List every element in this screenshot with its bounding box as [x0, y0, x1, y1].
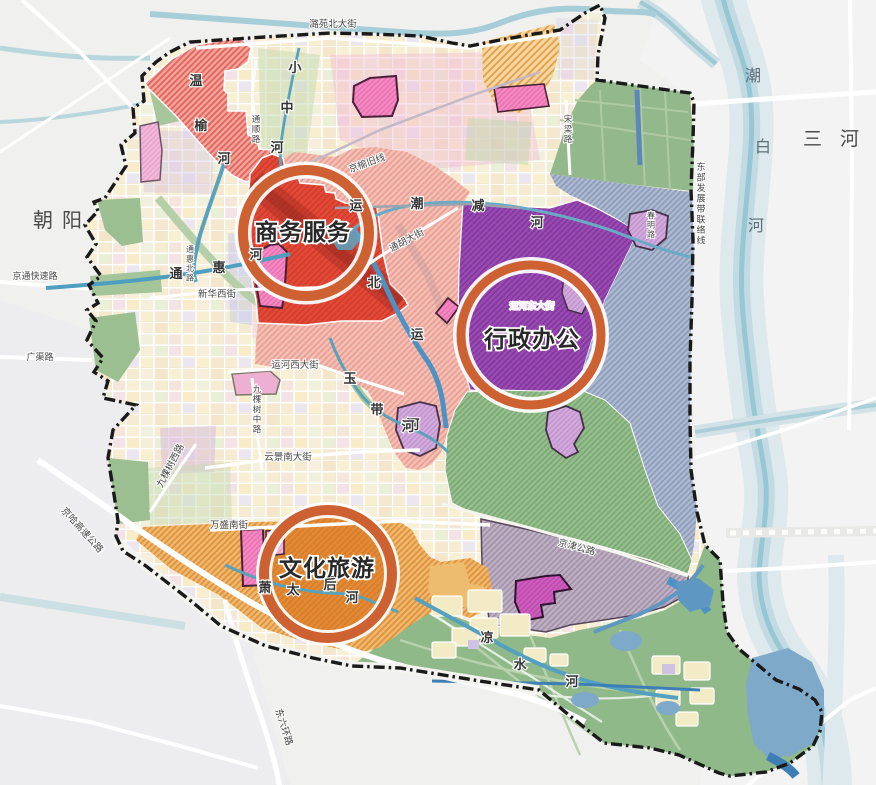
svg-text:三河: 三河: [803, 128, 876, 150]
svg-text:榆: 榆: [194, 118, 208, 133]
svg-text:宋梁路: 宋梁路: [564, 114, 573, 144]
svg-text:万盛南街: 万盛南街: [210, 519, 249, 531]
svg-text:新华西街: 新华西街: [198, 288, 237, 300]
svg-text:京通快速路: 京通快速路: [12, 270, 57, 281]
svg-text:白: 白: [755, 138, 771, 156]
svg-text:运河西大街: 运河西大街: [271, 359, 319, 371]
svg-text:河: 河: [217, 151, 230, 166]
svg-text:通: 通: [169, 266, 182, 281]
svg-text:云景南大街: 云景南大街: [264, 451, 312, 463]
svg-text:潮: 潮: [410, 196, 423, 211]
svg-text:广渠路: 广渠路: [26, 351, 53, 362]
svg-text:带: 带: [370, 402, 383, 417]
svg-text:潞苑北大街: 潞苑北大街: [309, 18, 357, 30]
svg-text:惠: 惠: [212, 260, 225, 275]
svg-text:河: 河: [748, 217, 764, 235]
svg-text:萧: 萧: [258, 580, 271, 595]
svg-text:河: 河: [565, 674, 578, 689]
svg-text:春明路: 春明路: [647, 210, 655, 239]
svg-text:后: 后: [323, 577, 336, 592]
svg-text:北: 北: [367, 275, 380, 290]
svg-text:行政办公: 行政办公: [483, 326, 580, 352]
svg-text:中: 中: [280, 100, 293, 115]
svg-text:通惠北路: 通惠北路: [186, 244, 194, 283]
svg-text:潮: 潮: [745, 67, 761, 85]
svg-text:河: 河: [401, 419, 414, 434]
svg-text:九棵树中路: 九棵树中路: [253, 384, 262, 434]
svg-text:运: 运: [349, 198, 362, 213]
svg-text:凉: 凉: [480, 630, 493, 645]
svg-text:减: 减: [471, 198, 484, 213]
svg-text:太: 太: [285, 582, 300, 597]
svg-text:商务服务: 商务服务: [255, 219, 351, 245]
svg-text:运: 运: [410, 327, 423, 342]
svg-text:东部发展带联络线: 东部发展带联络线: [696, 161, 705, 246]
svg-text:通顺路: 通顺路: [252, 114, 261, 144]
svg-text:玉: 玉: [343, 371, 356, 386]
svg-text:河: 河: [530, 215, 543, 230]
svg-text:运河东大街: 运河东大街: [509, 300, 554, 311]
svg-text:河: 河: [270, 140, 283, 155]
svg-text:温: 温: [189, 73, 202, 88]
svg-text:河: 河: [249, 247, 262, 262]
svg-text:小: 小: [288, 60, 301, 75]
svg-text:水: 水: [513, 657, 527, 672]
svg-text:河: 河: [345, 590, 358, 605]
svg-text:朝阳: 朝阳: [33, 209, 91, 232]
